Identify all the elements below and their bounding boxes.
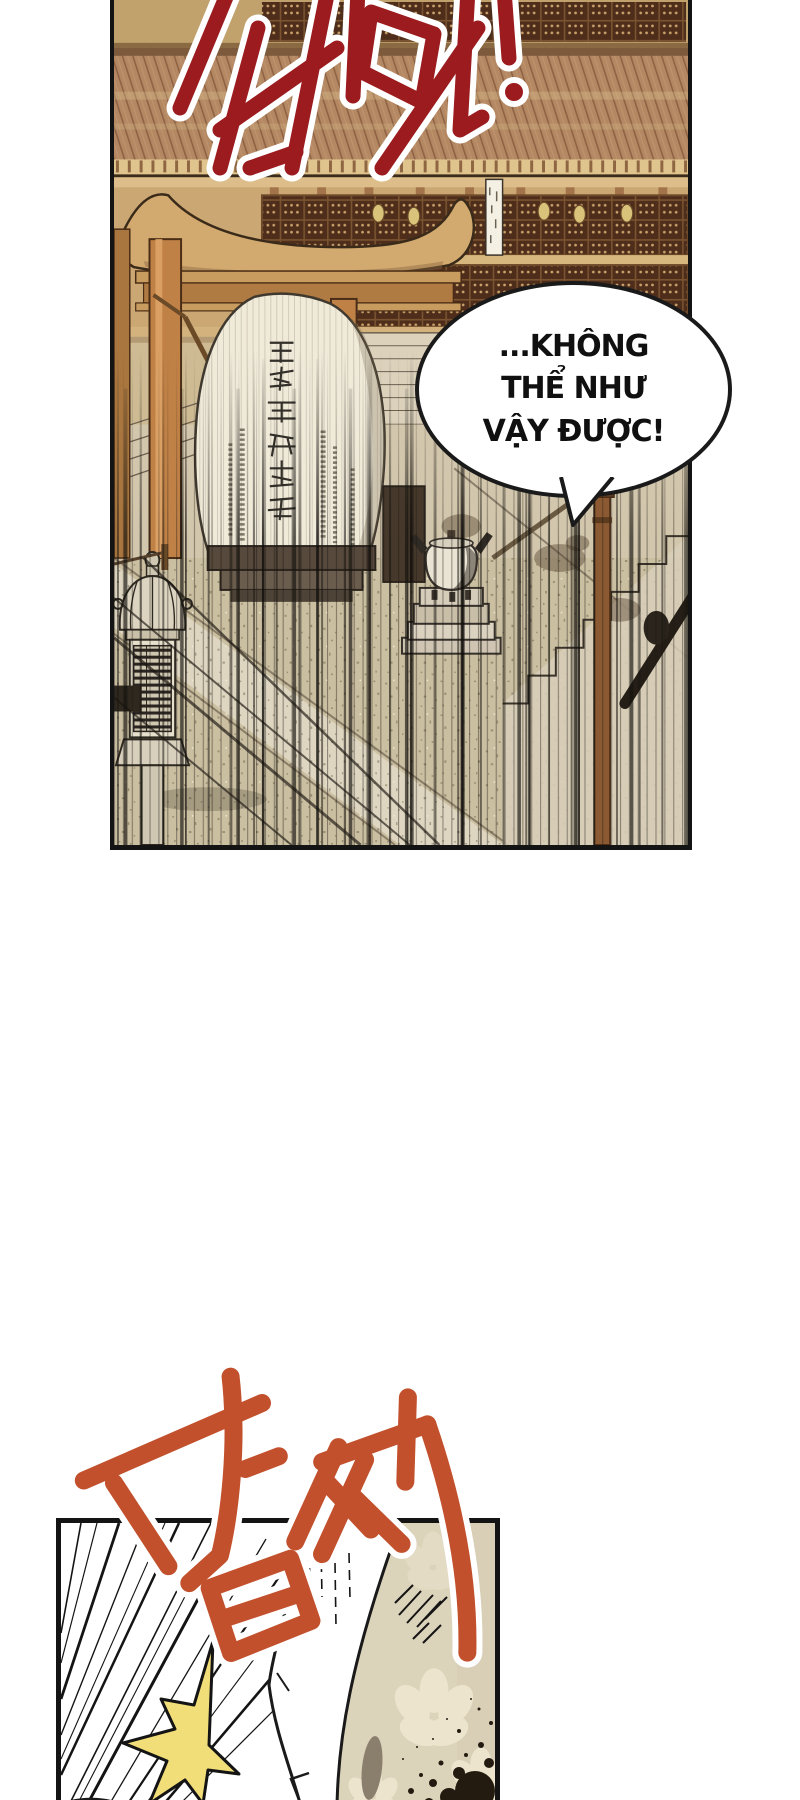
speech-line: ...KHÔNG bbox=[499, 326, 649, 369]
impact-scene bbox=[61, 1523, 495, 1800]
comic-page: ...KHÔNG THỂ NHƯ VẬY ĐƯỢC! bbox=[0, 0, 800, 1800]
white-banner bbox=[486, 179, 503, 255]
panel-bottom bbox=[56, 1518, 500, 1800]
speech-line: THỂ NHƯ bbox=[501, 368, 646, 411]
tiled-roof bbox=[114, 48, 688, 178]
speech-bubble: ...KHÔNG THỂ NHƯ VẬY ĐƯỢC! bbox=[415, 281, 732, 498]
speech-line: VẬY ĐƯỢC! bbox=[483, 411, 665, 454]
upper-storey bbox=[114, 0, 688, 49]
speech-bubble-tail bbox=[557, 477, 619, 529]
